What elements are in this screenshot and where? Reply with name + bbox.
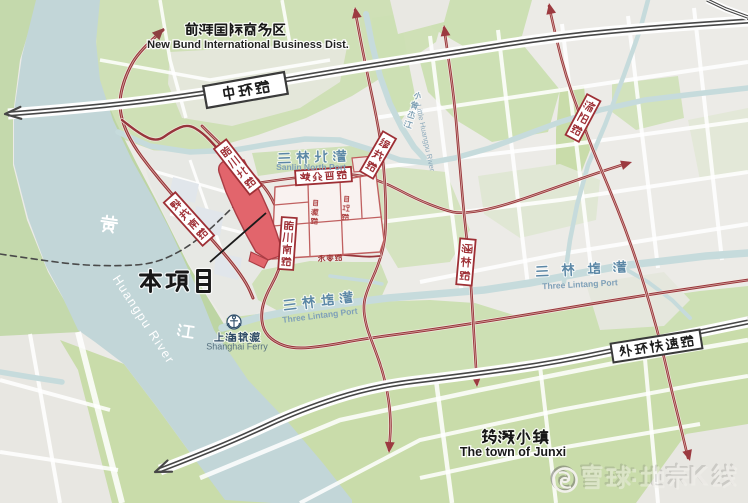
svg-text:K: K [689, 461, 709, 491]
svg-text::: : [630, 458, 639, 488]
svg-text:New Bund International Busines: New Bund International Business Dist. [147, 39, 349, 51]
svg-text:Shanghai Ferry: Shanghai Ferry [206, 341, 268, 351]
svg-text:Sanlin North Port: Sanlin North Port [276, 162, 346, 172]
svg-text:The town of Junxi: The town of Junxi [460, 445, 566, 459]
